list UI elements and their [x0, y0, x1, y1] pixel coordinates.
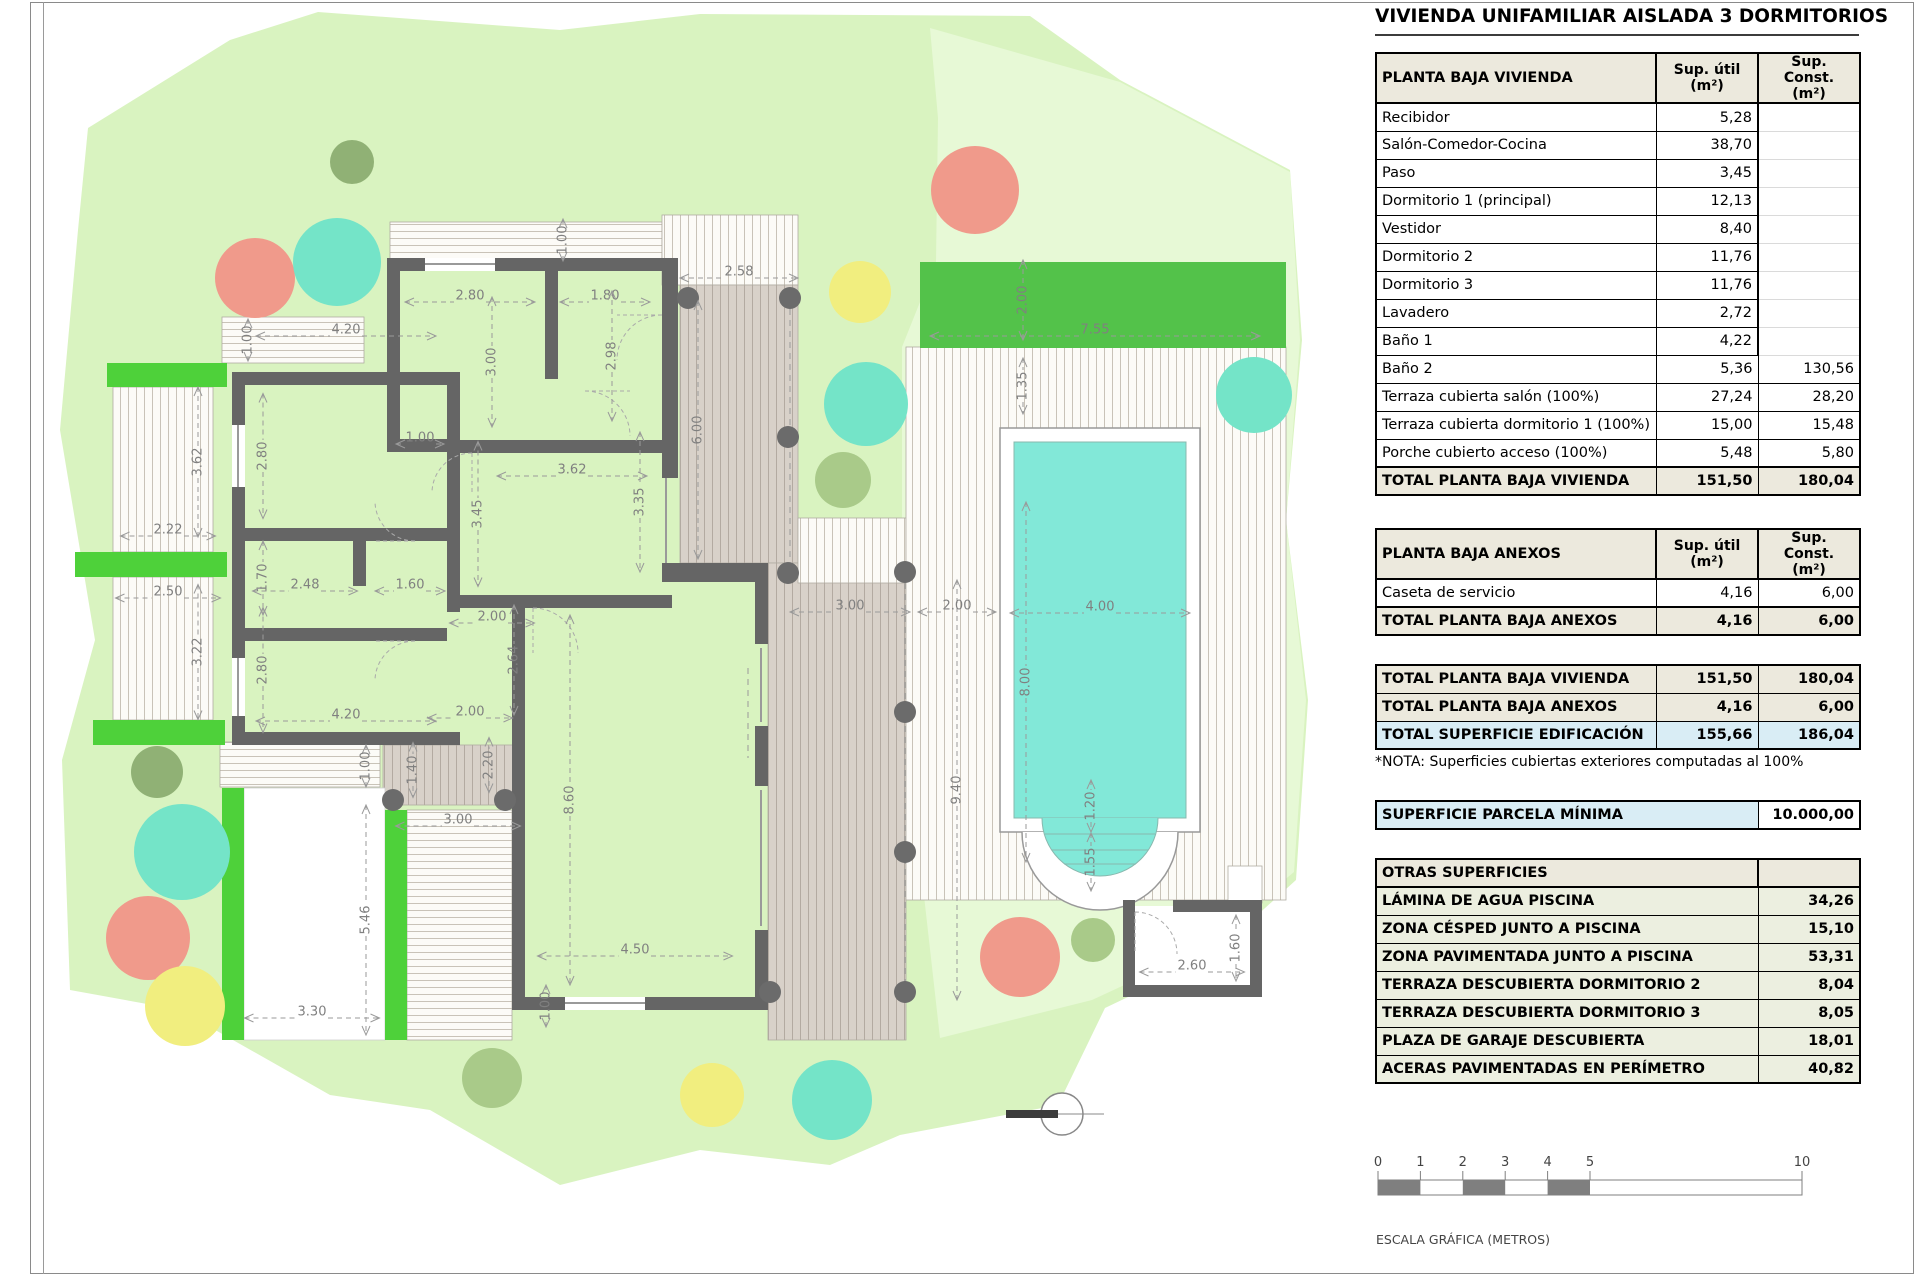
- table-cell-label: TERRAZA DESCUBIERTA DORMITORIO 3: [1376, 999, 1758, 1027]
- dimension-label: 1.80: [591, 289, 620, 304]
- table-cell-util: 5,36: [1656, 355, 1758, 383]
- table-cell-label: Terraza cubierta salón (100%): [1376, 383, 1656, 411]
- column: [779, 287, 801, 309]
- table-planta-baja-vivienda: PLANTA BAJA VIVIENDA Sup. útil (m²) Sup.…: [1375, 52, 1861, 496]
- table-header-row: OTRAS SUPERFICIES: [1376, 859, 1860, 887]
- dimension-label: 1.40: [406, 756, 421, 785]
- drawing-sheet: 1.002.582.801.803.002.986.001.004.202.80…: [0, 0, 1920, 1280]
- col-header-sup-const: Sup. Const. (m²): [1758, 529, 1860, 579]
- pool-water: [1014, 442, 1186, 818]
- table-cell-util: 8,40: [1656, 215, 1758, 243]
- dimension-label: 7.55: [1081, 323, 1110, 338]
- column: [777, 426, 799, 448]
- col-header-sup-util: Sup. útil (m²): [1656, 529, 1758, 579]
- table-cell-util: 11,76: [1656, 243, 1758, 271]
- dimension-label: 1.60: [1229, 934, 1244, 963]
- hedge: [107, 363, 227, 387]
- dimension-label: 3.62: [558, 463, 587, 478]
- dimension-label: 2.48: [291, 578, 320, 593]
- table-cell-util: 11,76: [1656, 271, 1758, 299]
- dimension-label: 6.00: [691, 416, 706, 445]
- tree: [680, 1063, 744, 1127]
- table-cell-label: ZONA CÉSPED JUNTO A PISCINA: [1376, 915, 1758, 943]
- table-cell-const: 5,80: [1758, 439, 1860, 467]
- dimension-label: 3.30: [298, 1005, 327, 1020]
- hedge: [385, 810, 407, 1040]
- tree: [829, 261, 891, 323]
- table-cell-label: Dormitorio 2: [1376, 243, 1656, 271]
- column: [777, 562, 799, 584]
- table-cell-label: Salón-Comedor-Cocina: [1376, 131, 1656, 159]
- tree: [1071, 918, 1115, 962]
- table-cell-label: Terraza cubierta dormitorio 1 (100%): [1376, 411, 1656, 439]
- table-row-total-superficie: TOTAL SUPERFICIE EDIFICACIÓN 155,66 186,…: [1376, 721, 1860, 749]
- table-cell-util: 5,28: [1656, 103, 1758, 131]
- tree: [815, 452, 871, 508]
- table-cell-const: [1758, 215, 1860, 243]
- dimension-label: 2.80: [456, 289, 485, 304]
- table-cell-value: 18,01: [1758, 1027, 1860, 1055]
- scale-segment: [1378, 1180, 1420, 1195]
- table-cell-util: 2,72: [1656, 299, 1758, 327]
- tree: [145, 966, 225, 1046]
- dimension-label: 1.60: [396, 578, 425, 593]
- table-row: Terraza cubierta dormitorio 1 (100%)15,0…: [1376, 411, 1860, 439]
- dimension-label: 3.00: [444, 813, 473, 828]
- table-row: LÁMINA DE AGUA PISCINA34,26: [1376, 887, 1860, 915]
- tree: [293, 218, 381, 306]
- site-floor-plan: 1.002.582.801.803.002.986.001.004.202.80…: [0, 0, 1370, 1280]
- table-row: Vestidor8,40: [1376, 215, 1860, 243]
- hedge: [222, 788, 244, 1040]
- dimension-label: 3.35: [633, 488, 648, 517]
- table-cell-const: 130,56: [1758, 355, 1860, 383]
- tree: [824, 362, 908, 446]
- dimension-label: 8.60: [563, 786, 578, 815]
- graphic-scale: 01234510: [1368, 1138, 1848, 1218]
- dimension-label: 2.64: [507, 646, 522, 675]
- table-row: Dormitorio 1 (principal)12,13: [1376, 187, 1860, 215]
- dimension-label: 1.00: [539, 992, 554, 1021]
- table-row: Lavadero2,72: [1376, 299, 1860, 327]
- table-row: PLAZA DE GARAJE DESCUBIERTA18,01: [1376, 1027, 1860, 1055]
- scale-tick-label: 2: [1459, 1155, 1467, 1170]
- paving-pool-west: [798, 518, 906, 583]
- dimension-label: 2.00: [456, 705, 485, 720]
- table-cell-value: 15,10: [1758, 915, 1860, 943]
- table-cell-const: [1758, 299, 1860, 327]
- scale-tick-label: 1: [1416, 1155, 1424, 1170]
- scale-segment: [1548, 1180, 1590, 1195]
- table-cell-util: 12,13: [1656, 187, 1758, 215]
- column: [894, 841, 916, 863]
- table-row: SUPERFICIE PARCELA MÍNIMA 10.000,00: [1376, 801, 1860, 829]
- table-cell-const: 28,20: [1758, 383, 1860, 411]
- table-cell-util: 38,70: [1656, 131, 1758, 159]
- table-cell-const: 6,00: [1758, 579, 1860, 607]
- scale-tick-label: 3: [1501, 1155, 1509, 1170]
- graphic-scale-label: ESCALA GRÁFICA (METROS): [1376, 1232, 1550, 1247]
- table-row: Baño 14,22: [1376, 327, 1860, 355]
- tree: [134, 804, 230, 900]
- dimension-label: 2.98: [605, 342, 620, 371]
- column: [894, 981, 916, 1003]
- table-cell-label: Baño 1: [1376, 327, 1656, 355]
- table-cell-label: ZONA PAVIMENTADA JUNTO A PISCINA: [1376, 943, 1758, 971]
- table-row: TERRAZA DESCUBIERTA DORMITORIO 38,05: [1376, 999, 1860, 1027]
- table-row: Dormitorio 311,76: [1376, 271, 1860, 299]
- table-cell-label: Baño 2: [1376, 355, 1656, 383]
- dimension-label: 4.20: [332, 323, 361, 338]
- column: [894, 701, 916, 723]
- table-row: Recibidor5,28: [1376, 103, 1860, 131]
- table-superficie-parcela: SUPERFICIE PARCELA MÍNIMA 10.000,00: [1375, 800, 1861, 830]
- table-row: ZONA CÉSPED JUNTO A PISCINA15,10: [1376, 915, 1860, 943]
- table-row: Salón-Comedor-Cocina38,70: [1376, 131, 1860, 159]
- table-row: TERRAZA DESCUBIERTA DORMITORIO 28,04: [1376, 971, 1860, 999]
- dimension-label: 4.00: [1086, 600, 1115, 615]
- dimension-label: 3.45: [471, 500, 486, 529]
- terrace-covered-salon: [768, 563, 906, 1040]
- dimension-label: 1.00: [359, 752, 374, 781]
- col-header-planta-baja: PLANTA BAJA VIVIENDA: [1376, 53, 1656, 103]
- table-row: Paso3,45: [1376, 159, 1860, 187]
- page-title: VIVIENDA UNIFAMILIAR AISLADA 3 DORMITORI…: [1375, 6, 1859, 36]
- table-cell-util: 4,16: [1656, 579, 1758, 607]
- dimension-label: 8.00: [1019, 668, 1034, 697]
- table-cell-util: 3,45: [1656, 159, 1758, 187]
- table-cell-const: [1758, 271, 1860, 299]
- table-row: ACERAS PAVIMENTADAS EN PERÍMETRO40,82: [1376, 1055, 1860, 1083]
- note-text: *NOTA: Superficies cubiertas exteriores …: [1375, 754, 1859, 770]
- dimension-label: 2.00: [943, 599, 972, 614]
- dimension-label: 1.00: [406, 431, 435, 446]
- column: [894, 561, 916, 583]
- table-cell-label: Lavadero: [1376, 299, 1656, 327]
- table-cell-label: Paso: [1376, 159, 1656, 187]
- table-cell-value: 40,82: [1758, 1055, 1860, 1083]
- dimension-label: 2.80: [256, 656, 271, 685]
- col-header-otras: OTRAS SUPERFICIES: [1376, 859, 1758, 887]
- table-planta-baja-anexos: PLANTA BAJA ANEXOS Sup. útil (m²) Sup. C…: [1375, 528, 1861, 636]
- tree: [1216, 357, 1292, 433]
- table-cell-label: PLAZA DE GARAJE DESCUBIERTA: [1376, 1027, 1758, 1055]
- table-cell-value: 53,31: [1758, 943, 1860, 971]
- table-cell-const: [1758, 327, 1860, 355]
- table-totales: TOTAL PLANTA BAJA VIVIENDA 151,50 180,04…: [1375, 664, 1861, 750]
- col-header-empty: [1758, 859, 1860, 887]
- tree: [330, 140, 374, 184]
- table-row: Baño 25,36130,56: [1376, 355, 1860, 383]
- table-cell-label: TERRAZA DESCUBIERTA DORMITORIO 2: [1376, 971, 1758, 999]
- dimension-label: 2.80: [256, 442, 271, 471]
- hedge: [93, 720, 225, 745]
- dimension-label: 3.22: [191, 638, 206, 667]
- dimension-label: 1.00: [556, 226, 571, 255]
- col-header-sup-util: Sup. útil (m²): [1656, 53, 1758, 103]
- table-cell-util: 15,00: [1656, 411, 1758, 439]
- table-cell-const: [1758, 187, 1860, 215]
- scale-tick-label: 4: [1543, 1155, 1551, 1170]
- table-row: ZONA PAVIMENTADA JUNTO A PISCINA53,31: [1376, 943, 1860, 971]
- column: [494, 789, 516, 811]
- dimension-label: 3.62: [191, 448, 206, 477]
- table-cell-label: Porche cubierto acceso (100%): [1376, 439, 1656, 467]
- table-cell-const: [1758, 159, 1860, 187]
- col-header-sup-const: Sup. Const. (m²): [1758, 53, 1860, 103]
- dimension-label: 2.00: [1016, 286, 1031, 315]
- table-row: Terraza cubierta salón (100%)27,2428,20: [1376, 383, 1860, 411]
- table-cell-const: 15,48: [1758, 411, 1860, 439]
- dimension-label: 3.00: [485, 348, 500, 377]
- tree: [462, 1048, 522, 1108]
- table-cell-label: Recibidor: [1376, 103, 1656, 131]
- dimension-label: 2.58: [725, 265, 754, 280]
- dimension-label: 1.55: [1084, 848, 1099, 877]
- dimension-label: 2.60: [1178, 959, 1207, 974]
- table-row: TOTAL PLANTA BAJA ANEXOS 4,16 6,00: [1376, 693, 1860, 721]
- table-header-row: PLANTA BAJA ANEXOS Sup. útil (m²) Sup. C…: [1376, 529, 1860, 579]
- column: [759, 981, 781, 1003]
- tree: [131, 746, 183, 798]
- dimension-label: 5.46: [359, 906, 374, 935]
- table-cell-label: Caseta de servicio: [1376, 579, 1656, 607]
- table-cell-label: Vestidor: [1376, 215, 1656, 243]
- scale-tick-label: 0: [1374, 1155, 1382, 1170]
- column: [382, 789, 404, 811]
- tree: [980, 917, 1060, 997]
- dimension-label: 1.00: [241, 326, 256, 355]
- dimension-label: 3.00: [836, 599, 865, 614]
- dimension-label: 1.35: [1016, 372, 1031, 401]
- dimension-label: 2.22: [154, 523, 183, 538]
- dimension-label: 2.20: [482, 751, 497, 780]
- table-row: Dormitorio 211,76: [1376, 243, 1860, 271]
- table-total-row: TOTAL PLANTA BAJA VIVIENDA 151,50 180,04: [1376, 467, 1860, 495]
- table-otras-superficies: OTRAS SUPERFICIES LÁMINA DE AGUA PISCINA…: [1375, 858, 1861, 1084]
- table-cell-label: Dormitorio 3: [1376, 271, 1656, 299]
- table-row: TOTAL PLANTA BAJA VIVIENDA 151,50 180,04: [1376, 665, 1860, 693]
- table-cell-label: Dormitorio 1 (principal): [1376, 187, 1656, 215]
- table-cell-label: LÁMINA DE AGUA PISCINA: [1376, 887, 1758, 915]
- paving-garage-side: [407, 810, 512, 1040]
- table-cell-util: 4,22: [1656, 327, 1758, 355]
- table-row: Caseta de servicio4,166,00: [1376, 579, 1860, 607]
- table-total-row: TOTAL PLANTA BAJA ANEXOS 4,16 6,00: [1376, 607, 1860, 635]
- scale-tick-label: 10: [1794, 1155, 1811, 1170]
- dimension-label: 2.00: [478, 610, 507, 625]
- dimension-label: 4.50: [621, 943, 650, 958]
- table-cell-label: ACERAS PAVIMENTADAS EN PERÍMETRO: [1376, 1055, 1758, 1083]
- table-cell-const: [1758, 243, 1860, 271]
- tree: [215, 238, 295, 318]
- table-cell-const: [1758, 103, 1860, 131]
- table-cell-const: [1758, 131, 1860, 159]
- table-header-row: PLANTA BAJA VIVIENDA Sup. útil (m²) Sup.…: [1376, 53, 1860, 103]
- scale-tick-label: 5: [1586, 1155, 1594, 1170]
- table-cell-value: 34,26: [1758, 887, 1860, 915]
- dimension-label: 4.20: [332, 708, 361, 723]
- table-cell-util: 27,24: [1656, 383, 1758, 411]
- hedge: [75, 552, 227, 577]
- paving-notch: [1228, 866, 1262, 903]
- table-cell-value: 8,04: [1758, 971, 1860, 999]
- scale-segment: [1463, 1180, 1505, 1195]
- table-row: Porche cubierto acceso (100%)5,485,80: [1376, 439, 1860, 467]
- col-header-anexos: PLANTA BAJA ANEXOS: [1376, 529, 1656, 579]
- dimension-label: 1.20: [1084, 792, 1099, 821]
- dimension-label: 2.50: [154, 585, 183, 600]
- tree: [792, 1060, 872, 1140]
- dimension-label: 9.40: [950, 776, 965, 805]
- sidewalk-bottom: [220, 742, 380, 787]
- table-cell-value: 8,05: [1758, 999, 1860, 1027]
- table-cell-util: 5,48: [1656, 439, 1758, 467]
- tree: [931, 146, 1019, 234]
